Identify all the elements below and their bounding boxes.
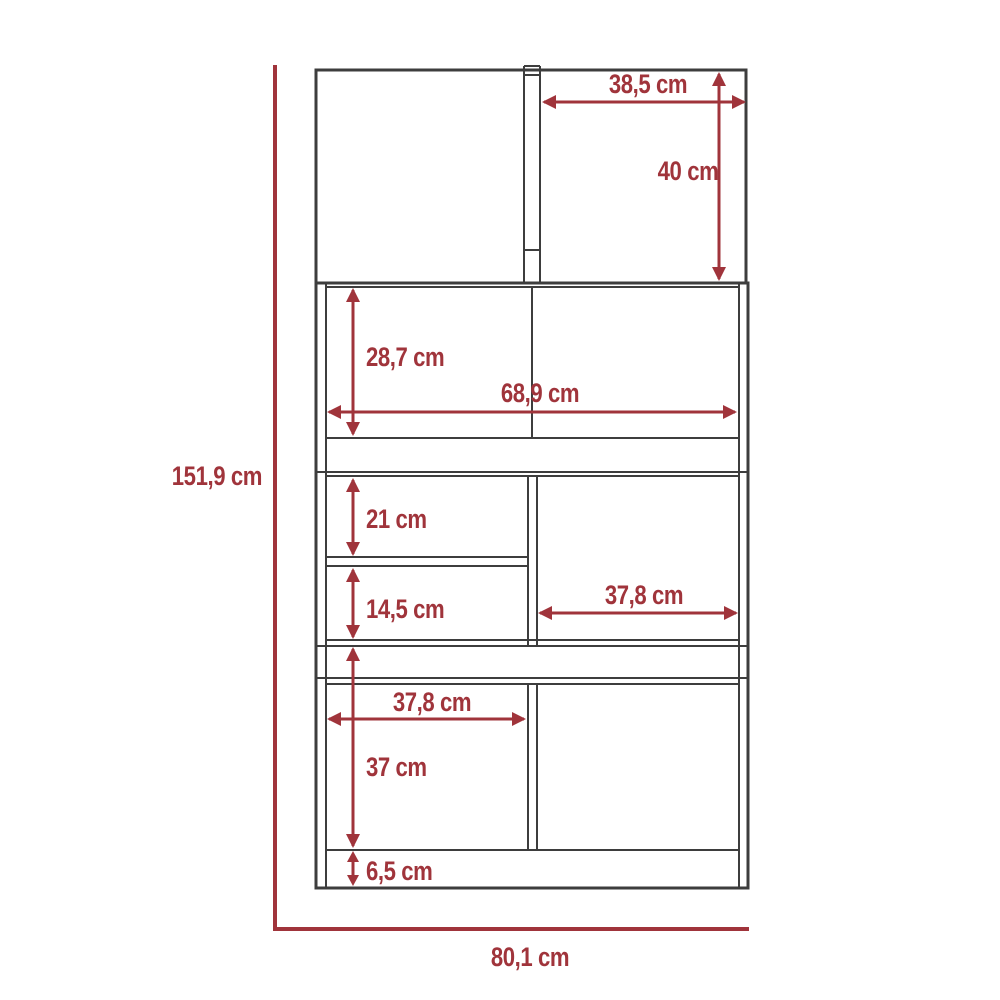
- dim-label-middle-drawer-height: 14,5 cm: [366, 595, 444, 625]
- dim-base-height: 6,5 cm: [347, 851, 432, 887]
- dim-top-drawer-height-arrowhead-bottom: [346, 542, 360, 556]
- dim-interior-width-arrowhead-right: [723, 405, 737, 419]
- dim-base-height-arrowhead-bottom: [347, 875, 359, 886]
- furniture-dimension-diagram: 151,9 cm 80,1 cm 38,5 cm 40 cm 28,7 cm: [0, 0, 1000, 1000]
- dim-top-drawer-height: 21 cm: [346, 478, 427, 556]
- dim-label-overall-width: 80,1 cm: [491, 943, 569, 973]
- dim-label-interior-width: 68,9 cm: [501, 379, 579, 409]
- dim-top-door-height-arrowhead-top: [712, 72, 726, 86]
- dim-label-base-height: 6,5 cm: [366, 857, 432, 887]
- dim-interior-width-arrowhead-left: [327, 405, 341, 419]
- dim-bottom-left-compartment-width: 37,8 cm: [327, 688, 526, 726]
- dim-bottom-left-compartment-width-arrowhead-left: [327, 712, 341, 726]
- dim-top-door-height-arrowhead-bottom: [712, 267, 726, 281]
- dim-label-bottom-left-compartment-width: 37,8 cm: [393, 688, 471, 718]
- cabinet-diagram-canvas: 151,9 cm 80,1 cm 38,5 cm 40 cm 28,7 cm: [0, 0, 1000, 1000]
- dim-label-top-door-height: 40 cm: [658, 157, 719, 187]
- dim-middle-drawer-height: 14,5 cm: [346, 568, 444, 639]
- dim-overall-bracket-line: [275, 65, 749, 929]
- dim-top-door-width-arrowhead-right: [732, 95, 746, 109]
- dim-upper-compartment-height: 28,7 cm: [346, 288, 444, 436]
- dim-label-overall-height: 151,9 cm: [172, 462, 262, 492]
- dim-overall: 151,9 cm 80,1 cm: [172, 65, 749, 973]
- dim-middle-drawer-height-arrowhead-bottom: [346, 625, 360, 639]
- dim-label-top-door-width: 38,5 cm: [609, 70, 687, 100]
- dim-top-door-width: 38,5 cm: [542, 70, 746, 109]
- dim-label-upper-compartment-height: 28,7 cm: [366, 343, 444, 373]
- dim-upper-compartment-height-arrowhead-bottom: [346, 422, 360, 436]
- dim-right-compartment-width-arrowhead-left: [538, 606, 552, 620]
- dim-right-compartment-width-arrowhead-right: [724, 606, 738, 620]
- dim-label-bottom-compartment-height: 37 cm: [366, 753, 427, 783]
- dim-base-height-arrowhead-top: [347, 851, 359, 862]
- dim-bottom-compartment-height-arrowhead-top: [346, 647, 360, 661]
- dim-top-door-width-arrowhead-left: [542, 95, 556, 109]
- dim-bottom-compartment-height-arrowhead-bottom: [346, 834, 360, 848]
- dim-right-compartment-width: 37,8 cm: [538, 581, 738, 620]
- dim-label-right-compartment-width: 37,8 cm: [605, 581, 683, 611]
- dim-label-top-drawer-height: 21 cm: [366, 505, 427, 535]
- dim-bottom-left-compartment-width-arrowhead-right: [512, 712, 526, 726]
- dim-interior-width: 68,9 cm: [327, 379, 737, 419]
- dim-middle-drawer-height-arrowhead-top: [346, 568, 360, 582]
- dim-upper-compartment-height-arrowhead-top: [346, 288, 360, 302]
- dim-top-drawer-height-arrowhead-top: [346, 478, 360, 492]
